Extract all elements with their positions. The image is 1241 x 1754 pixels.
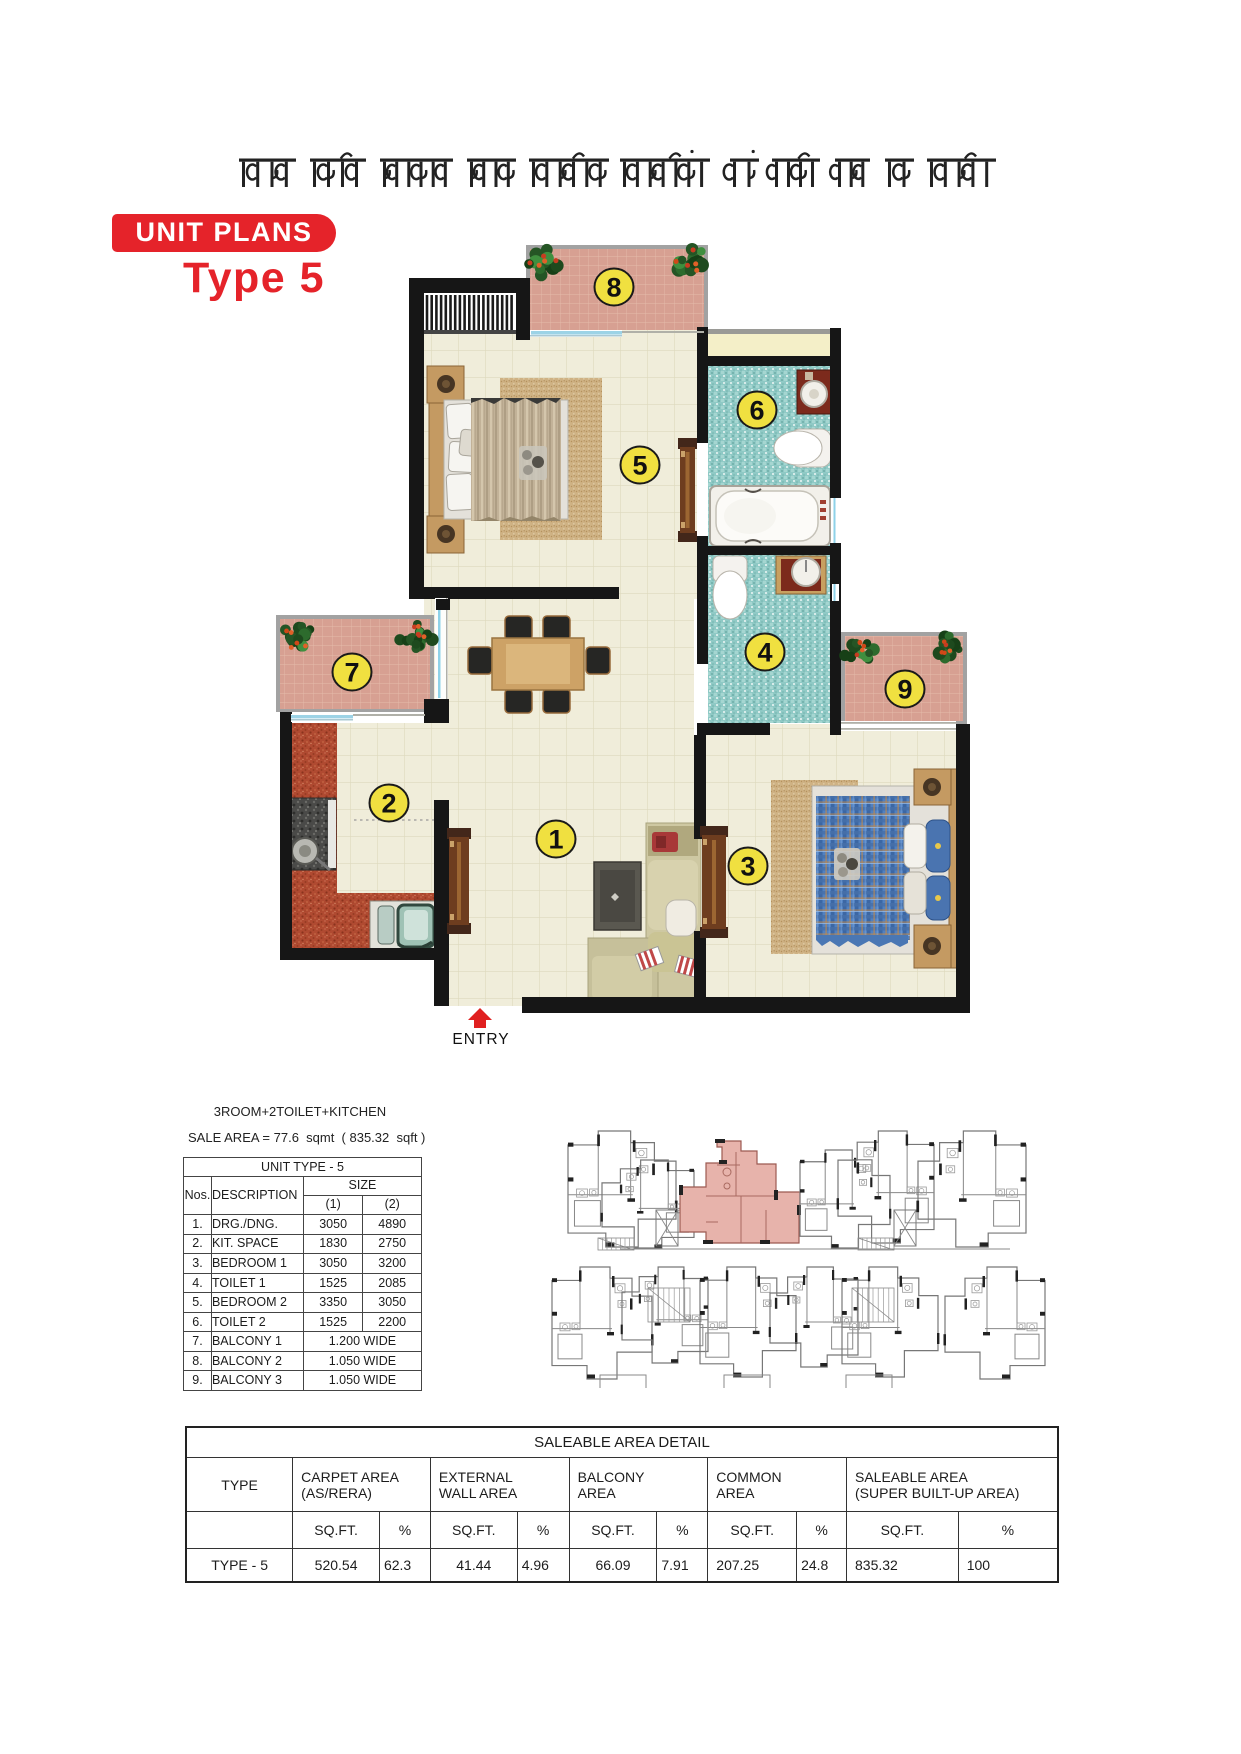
svg-text:3: 3 xyxy=(740,852,755,882)
svg-text:6: 6 xyxy=(749,396,764,426)
svg-text:7: 7 xyxy=(344,658,359,688)
svg-text:9: 9 xyxy=(897,675,912,705)
svg-text:4: 4 xyxy=(757,638,772,668)
svg-text:5: 5 xyxy=(632,451,647,481)
svg-text:1: 1 xyxy=(548,825,563,855)
svg-text:2: 2 xyxy=(381,789,396,819)
svg-text:8: 8 xyxy=(606,273,621,303)
svg-text:ENTRY: ENTRY xyxy=(452,1031,509,1048)
